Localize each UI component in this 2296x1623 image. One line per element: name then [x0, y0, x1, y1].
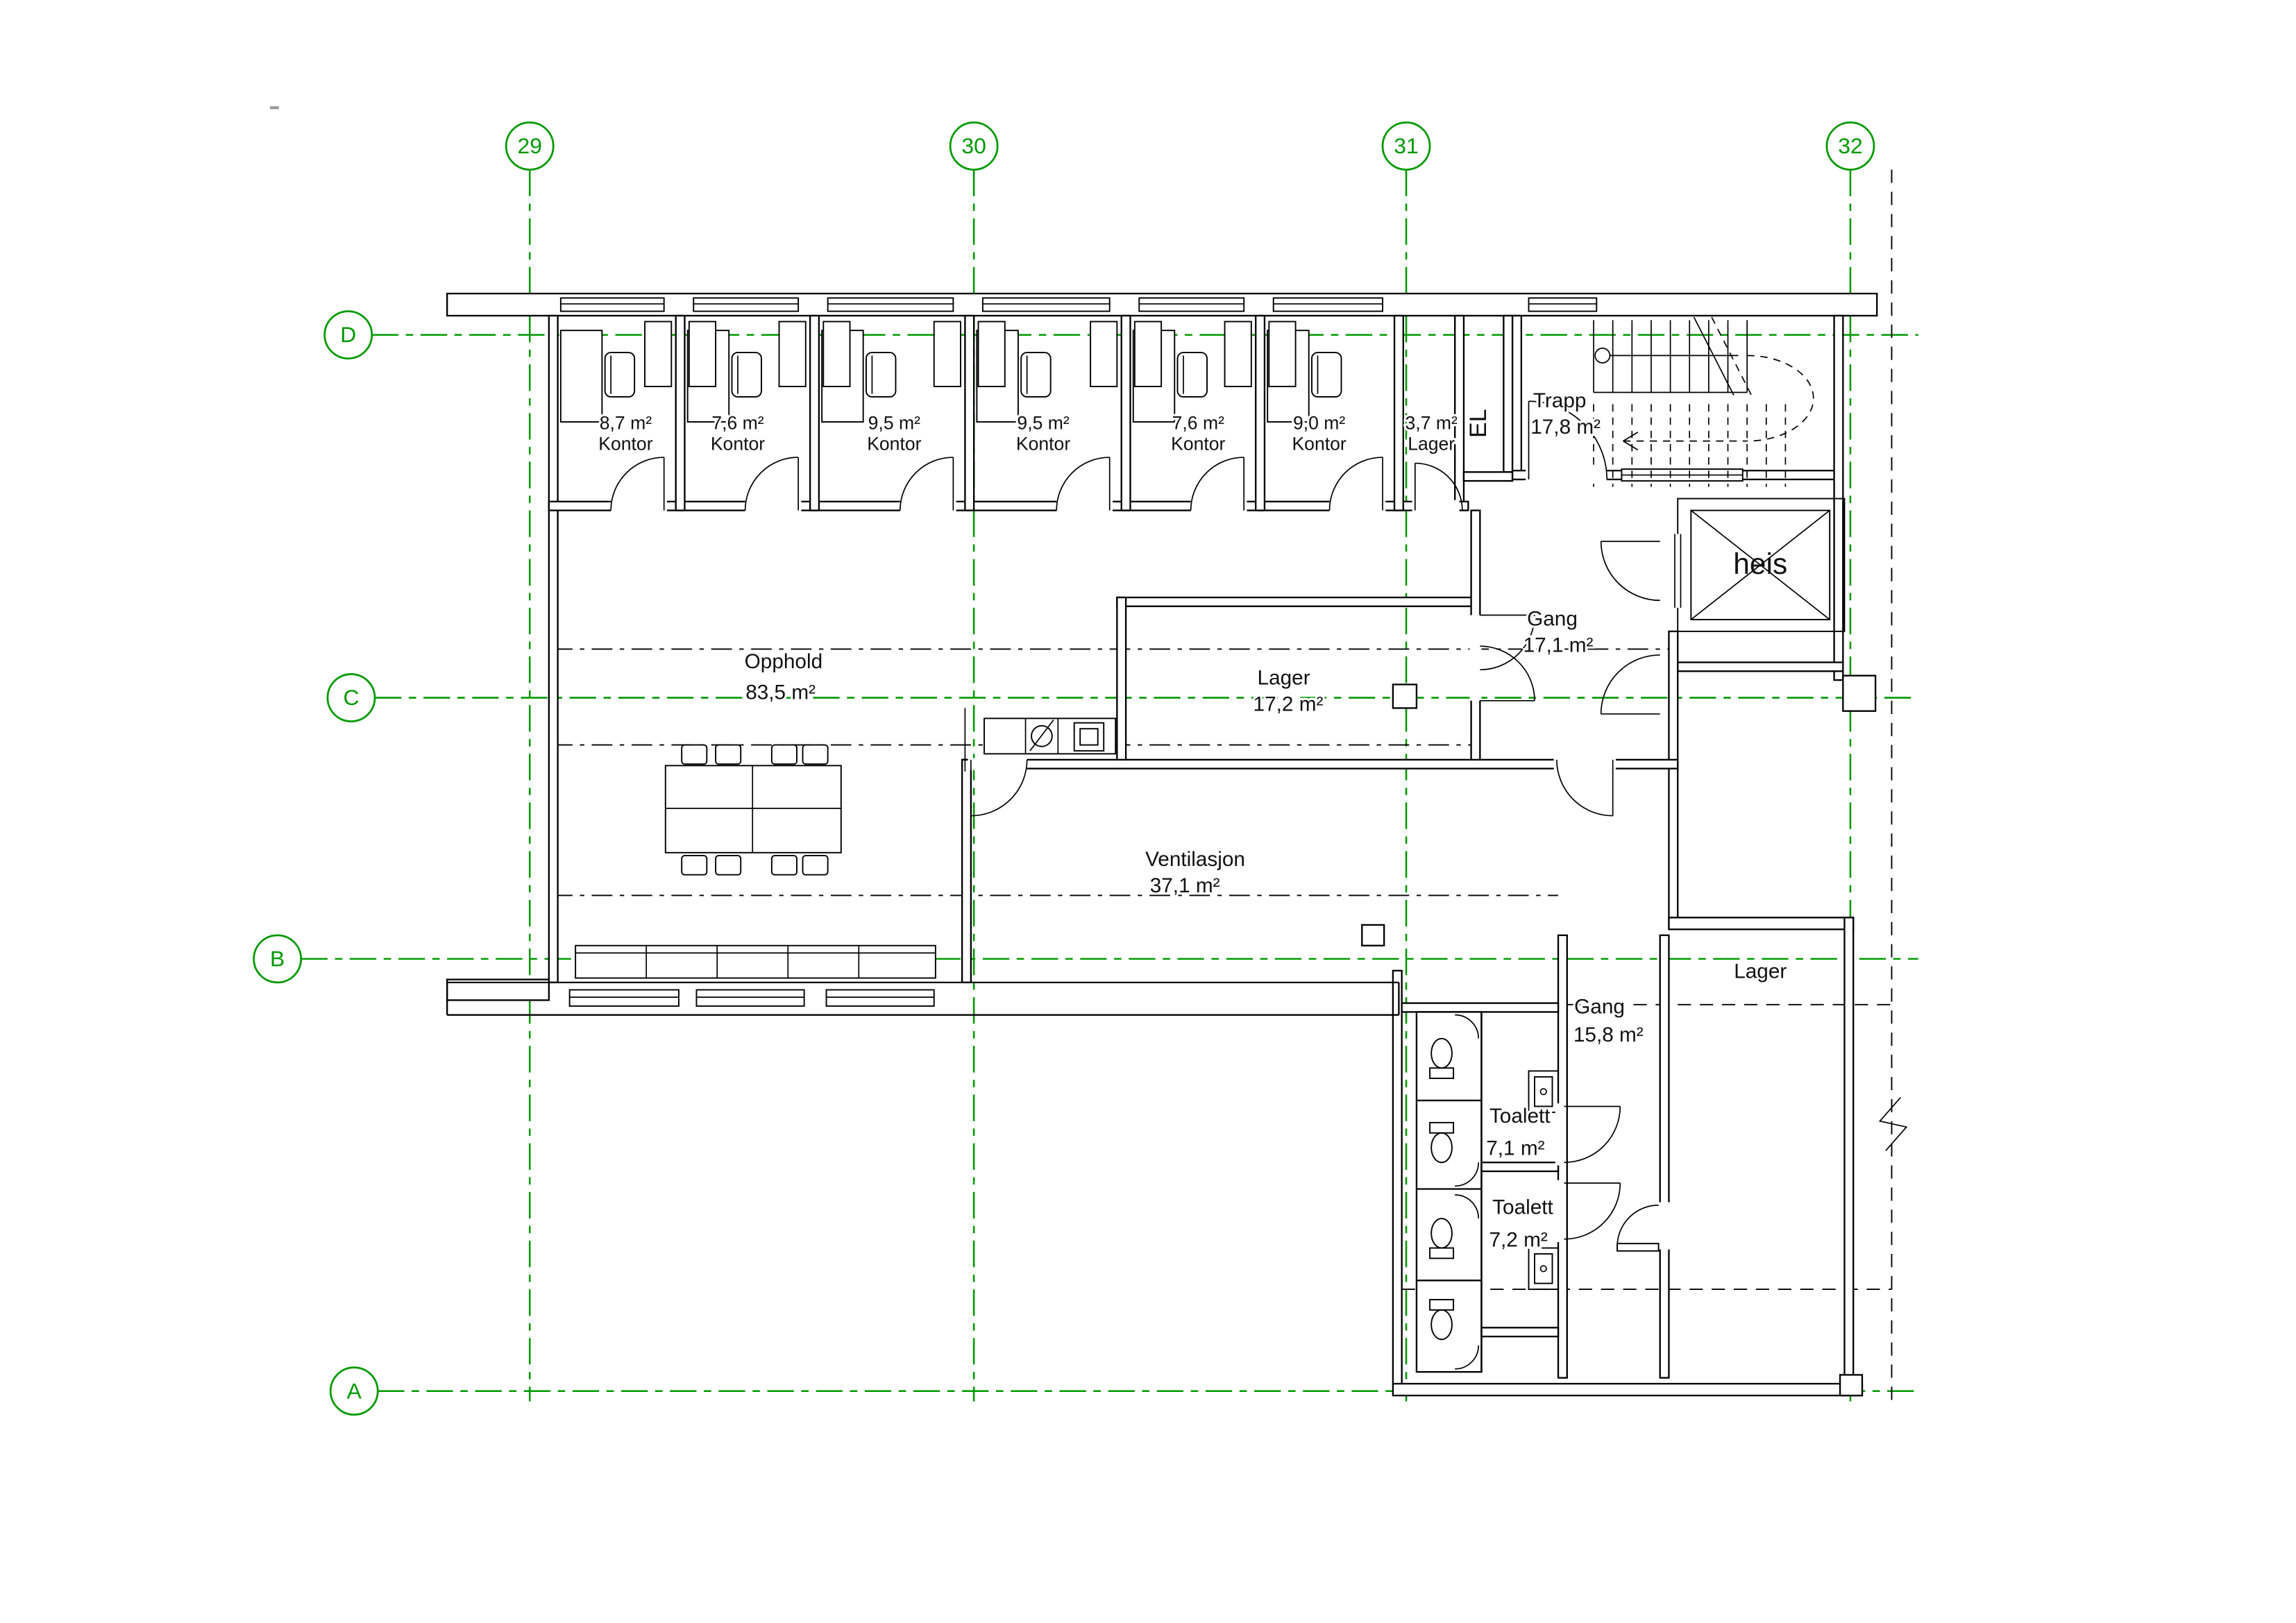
door — [968, 758, 1027, 816]
window — [696, 990, 804, 1006]
meeting-table — [666, 745, 841, 875]
grid-bubble-C: C — [328, 674, 375, 722]
walkline-start — [1595, 348, 1610, 363]
grid-label-32: 32 — [1838, 133, 1862, 158]
door — [1601, 655, 1660, 714]
door — [745, 457, 802, 512]
label-toalett2-name: Toalett — [1492, 1196, 1553, 1219]
sink-icon — [1528, 1248, 1558, 1290]
door — [1191, 457, 1247, 512]
label-el: EL — [1465, 409, 1492, 438]
window — [693, 298, 798, 311]
window — [1621, 469, 1742, 481]
grid-label-B: B — [270, 946, 285, 971]
window — [1139, 298, 1244, 311]
label-kontor4-area: 9,5 m² — [1017, 413, 1069, 434]
label-kontor3-area: 9,5 m² — [868, 413, 920, 434]
label-kontor5-name: Kontor — [1171, 433, 1225, 454]
window — [827, 990, 934, 1006]
label-gang-nedre-name: Gang — [1574, 996, 1625, 1019]
label-lager-liten-name: Lager — [1408, 433, 1455, 454]
label-ventilasjon-area: 37,1 m² — [1150, 874, 1220, 897]
label-lager-liten-area: 3,7 m² — [1406, 413, 1458, 434]
window — [983, 298, 1110, 311]
door — [611, 457, 667, 512]
label-kontor6-name: Kontor — [1292, 433, 1346, 454]
label-opphold-name: Opphold — [745, 650, 822, 673]
label-kontor2-name: Kontor — [711, 433, 765, 454]
grid-label-A: A — [347, 1378, 362, 1403]
grid-label-31: 31 — [1394, 133, 1418, 158]
grid-label-D: D — [340, 322, 356, 347]
label-toalett1-name: Toalett — [1489, 1105, 1551, 1128]
label-kontor3-name: Kontor — [867, 433, 921, 454]
grid-bubble-32: 32 — [1827, 122, 1874, 169]
window — [1528, 298, 1596, 311]
grid-label-30: 30 — [961, 133, 986, 158]
label-kontor6-area: 9,0 m² — [1293, 413, 1345, 434]
office-desk — [561, 330, 634, 422]
label-heis: heis — [1733, 548, 1787, 581]
label-kontor2-area: 7,6 m² — [711, 413, 763, 434]
window — [561, 298, 664, 311]
label-ventilasjon-name: Ventilasjon — [1145, 848, 1245, 871]
label-kontor4-name: Kontor — [1016, 433, 1070, 454]
walkline-turn — [1747, 355, 1814, 441]
label-trapp-area: 17,8 m² — [1530, 416, 1601, 439]
grid-bubble-31: 31 — [1383, 122, 1430, 169]
grid-bubble-A: A — [330, 1368, 378, 1415]
stairs — [1594, 317, 1814, 486]
double-door — [1469, 615, 1535, 701]
break-symbol — [1880, 1098, 1906, 1151]
walkline-arrow — [1623, 432, 1638, 441]
floor-plan: 29 30 31 32 D C B A 8,7 m² Kontor 7,6 m²… — [0, 0, 2296, 1623]
window — [828, 298, 954, 311]
door — [1554, 758, 1616, 816]
window — [570, 990, 679, 1006]
grid-bubble-29: 29 — [506, 122, 553, 169]
grid-bubble-B: B — [254, 935, 301, 983]
door — [1329, 457, 1385, 512]
door — [1617, 1203, 1672, 1251]
door — [1601, 541, 1660, 600]
label-toalett2-area: 7,2 m² — [1489, 1228, 1547, 1251]
door — [1526, 401, 1607, 481]
window — [1274, 298, 1383, 311]
grid-label-29: 29 — [517, 133, 541, 158]
label-lager-midt-area: 17,2 m² — [1253, 693, 1324, 716]
label-kontor1-area: 8,7 m² — [600, 413, 652, 434]
door — [900, 457, 956, 512]
grid-label-C: C — [343, 685, 359, 710]
label-lager-midt-name: Lager — [1258, 666, 1310, 689]
label-kontor1-name: Kontor — [598, 433, 652, 454]
label-trapp-name: Trapp — [1533, 389, 1587, 412]
grid-bubble-30: 30 — [950, 122, 997, 169]
door — [1056, 457, 1113, 512]
label-gang-oevre-name: Gang — [1527, 607, 1578, 630]
label-gang-oevre-area: 17,1 m² — [1523, 634, 1594, 657]
label-gang-nedre-area: 15,8 m² — [1573, 1023, 1644, 1046]
label-kontor5-area: 7,6 m² — [1172, 413, 1224, 434]
label-opphold-area: 83,5 m² — [745, 681, 816, 704]
grid-bubble-D: D — [325, 312, 372, 359]
label-toalett1-area: 7,1 m² — [1486, 1137, 1544, 1160]
label-lager-soer: Lager — [1734, 960, 1787, 983]
bench-row — [575, 946, 936, 978]
